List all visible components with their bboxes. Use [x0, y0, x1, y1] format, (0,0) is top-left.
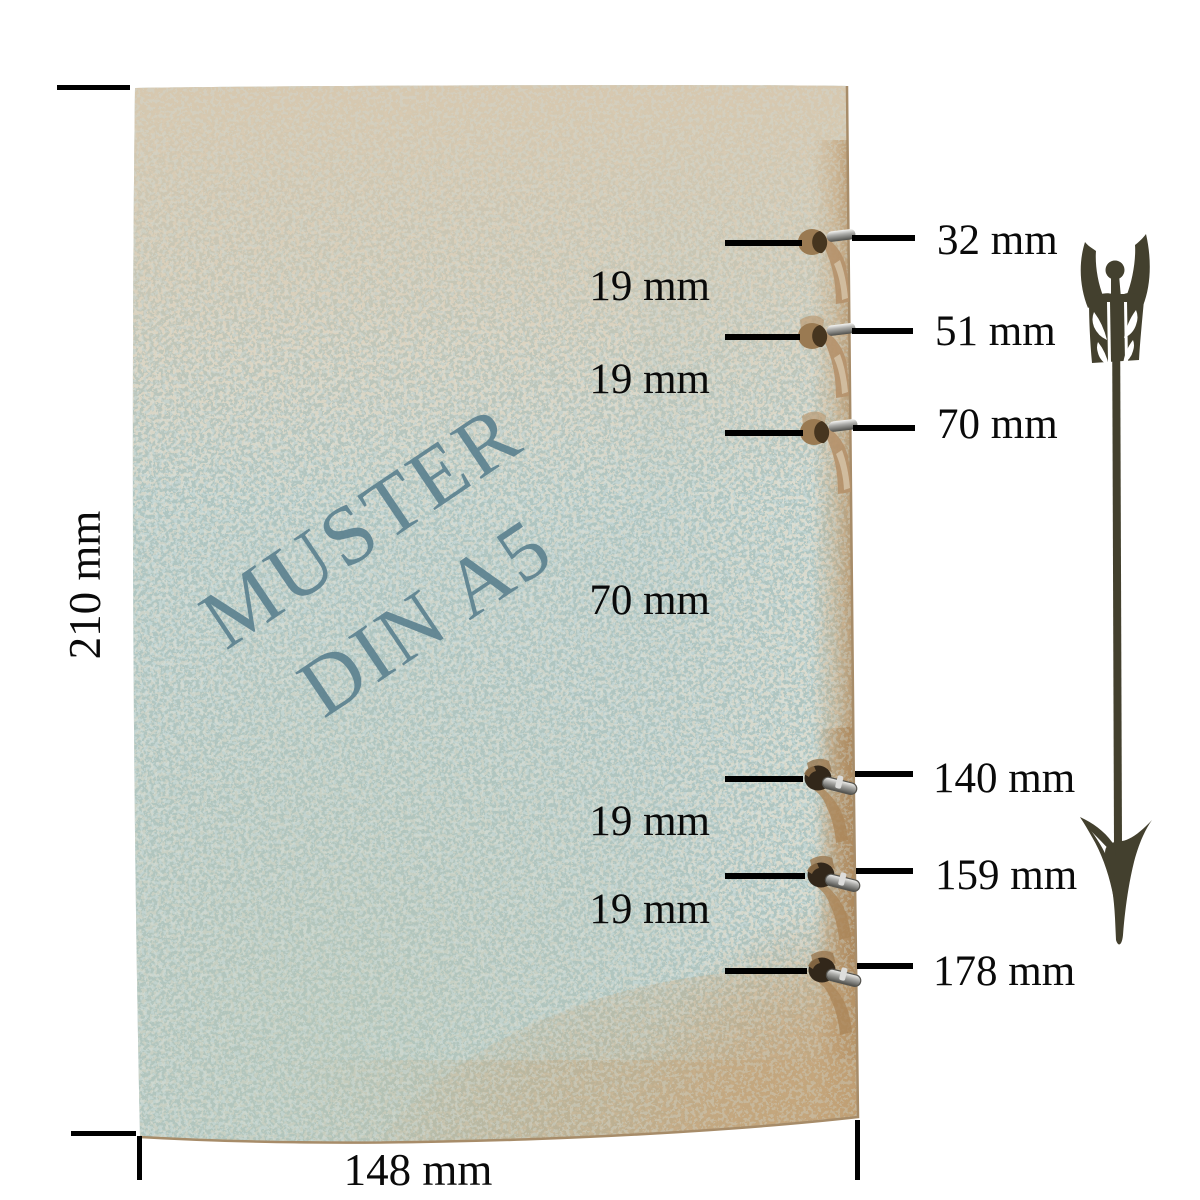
svg-text:51 mm: 51 mm [935, 308, 1056, 355]
svg-text:140 mm: 140 mm [933, 755, 1075, 802]
svg-text:19 mm: 19 mm [589, 356, 710, 403]
svg-text:19 mm: 19 mm [589, 263, 710, 310]
svg-text:32 mm: 32 mm [937, 217, 1058, 264]
svg-text:210 mm: 210 mm [60, 511, 110, 660]
svg-text:19 mm: 19 mm [589, 886, 710, 933]
svg-text:70 mm: 70 mm [937, 401, 1058, 448]
svg-text:19 mm: 19 mm [589, 798, 710, 845]
svg-text:148 mm: 148 mm [344, 1145, 493, 1195]
svg-text:159 mm: 159 mm [935, 852, 1077, 899]
svg-text:178 mm: 178 mm [933, 948, 1075, 995]
svg-text:70 mm: 70 mm [589, 577, 710, 624]
